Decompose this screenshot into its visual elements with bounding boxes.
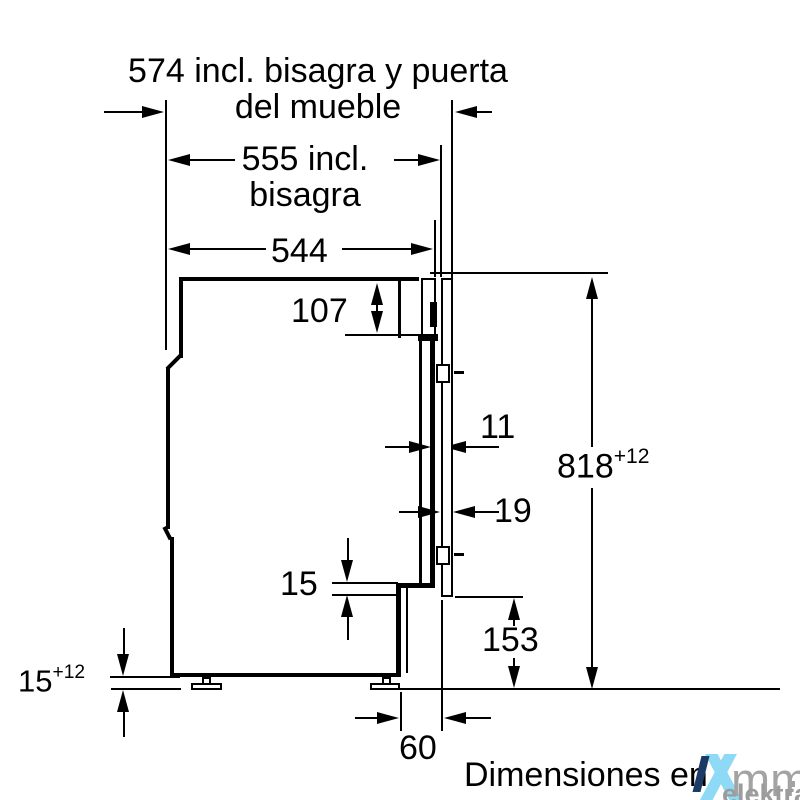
dim-574-arrow-right-head <box>455 106 477 118</box>
dim-15-12-arrow-down-head <box>117 654 129 676</box>
dim-19-label: 19 <box>494 494 532 530</box>
dim-15-line-lower <box>347 615 349 640</box>
foot-left-base <box>191 683 222 690</box>
dim-15-line-upper <box>347 538 349 562</box>
extension-line-107-bottom <box>345 334 421 336</box>
extension-line-left <box>165 100 167 350</box>
hinge-top <box>436 364 450 383</box>
dim-818-value: 818 <box>557 447 614 485</box>
dim-555-arrow-left-line <box>188 159 235 161</box>
dim-555-label: 555 incl. bisagra <box>205 142 405 213</box>
hinge-bottom <box>436 546 450 565</box>
dim-818-line-lower <box>591 488 593 670</box>
dim-153-arrow-down-head <box>508 666 520 688</box>
dim-818-tolerance: +12 <box>614 445 650 468</box>
dim-107-arrow-down-head <box>371 311 383 333</box>
dim-818-arrow-down-head <box>586 667 598 689</box>
extension-line-555-right <box>440 145 442 277</box>
dim-574-arrow-left-line <box>104 111 146 113</box>
hinge-bracket-top-bar <box>430 302 437 327</box>
dim-818-label: 818+12 <box>557 448 650 485</box>
dim-15-12-value: 15 <box>18 663 52 698</box>
dim-574-label-line1: 574 incl. bisagra y puerta <box>93 54 543 90</box>
dim-544-arrow-right-head <box>411 243 433 255</box>
caption-text: Dimensiones en <box>464 758 708 794</box>
dim-19-arrow-right-head <box>453 506 475 518</box>
extension-line-15-upper <box>332 582 398 584</box>
dim-60-arrow-left-head <box>377 712 399 724</box>
dim-544-arrow-left-line <box>188 248 266 250</box>
appliance-plinth-front <box>396 588 401 677</box>
dim-153-label: 153 <box>482 623 539 659</box>
dim-15-arrow-down-head <box>341 560 353 582</box>
dim-555-arrow-right-head <box>418 154 440 166</box>
appliance-left-wall-lower <box>170 537 174 677</box>
dim-15-12-arrow-up-head <box>117 690 129 712</box>
dim-15-12-line-lower <box>123 710 125 737</box>
appliance-front-wall-upper <box>398 281 401 338</box>
extension-line-574-right <box>451 100 453 278</box>
extension-line-818-top <box>430 272 608 274</box>
dim-153-arrow-up-head <box>508 598 520 620</box>
appliance-plinth-inner-line <box>406 588 408 673</box>
dim-544-arrow-right-line <box>342 248 414 250</box>
dim-153-line-upper <box>513 618 515 626</box>
extension-line-60-left <box>400 692 402 731</box>
dim-555-arrow-left-head <box>168 154 190 166</box>
dim-107-label: 107 <box>291 294 348 330</box>
dim-818-arrow-up-head <box>586 277 598 299</box>
dim-544-label: 544 <box>271 234 328 270</box>
dim-555-label-line2: bisagra <box>205 178 405 214</box>
dim-60-label: 60 <box>399 731 437 767</box>
extension-line-60-right <box>441 600 443 731</box>
foot-right-base <box>370 683 400 690</box>
dim-15-12-line-upper <box>123 628 125 657</box>
dim-15-label: 15 <box>280 567 318 603</box>
dim-544-arrow-left-head <box>168 243 190 255</box>
appliance-left-wall-bulge <box>166 368 170 529</box>
dim-555-label-line1: 555 incl. <box>205 142 405 178</box>
dim-555-arrow-right-line <box>394 159 420 161</box>
dim-818-line-upper <box>591 297 593 447</box>
front-frame-joint <box>418 334 438 341</box>
dim-15-arrow-up-head <box>341 595 353 617</box>
extension-line-544-right <box>434 220 436 277</box>
hinge-top-centerline-dash <box>454 371 464 374</box>
dim-574-arrow-left-head <box>142 106 164 118</box>
installation-diagram: 574 incl. bisagra y puerta del mueble 55… <box>0 0 800 800</box>
dim-19-arrow-right-line <box>473 511 499 513</box>
dim-60-arrow-right-line <box>464 717 491 719</box>
hinge-bottom-centerline-dash <box>454 553 464 556</box>
dim-574-arrow-right-line <box>475 111 492 113</box>
dim-15-12-label: 15+12 <box>18 665 85 698</box>
appliance-front-wall-inner <box>419 341 422 583</box>
appliance-front-step <box>396 583 435 588</box>
dim-15-12-tolerance: +12 <box>52 662 85 683</box>
appliance-top-edge <box>179 277 419 281</box>
dim-11-arrow-right-line <box>464 446 499 448</box>
dim-60-arrow-right-head <box>444 712 466 724</box>
appliance-front-frame <box>430 341 435 583</box>
dim-11-label: 11 <box>480 410 515 446</box>
watermark-name: elektra <box>722 779 800 800</box>
appliance-left-wall-upper <box>179 277 183 358</box>
